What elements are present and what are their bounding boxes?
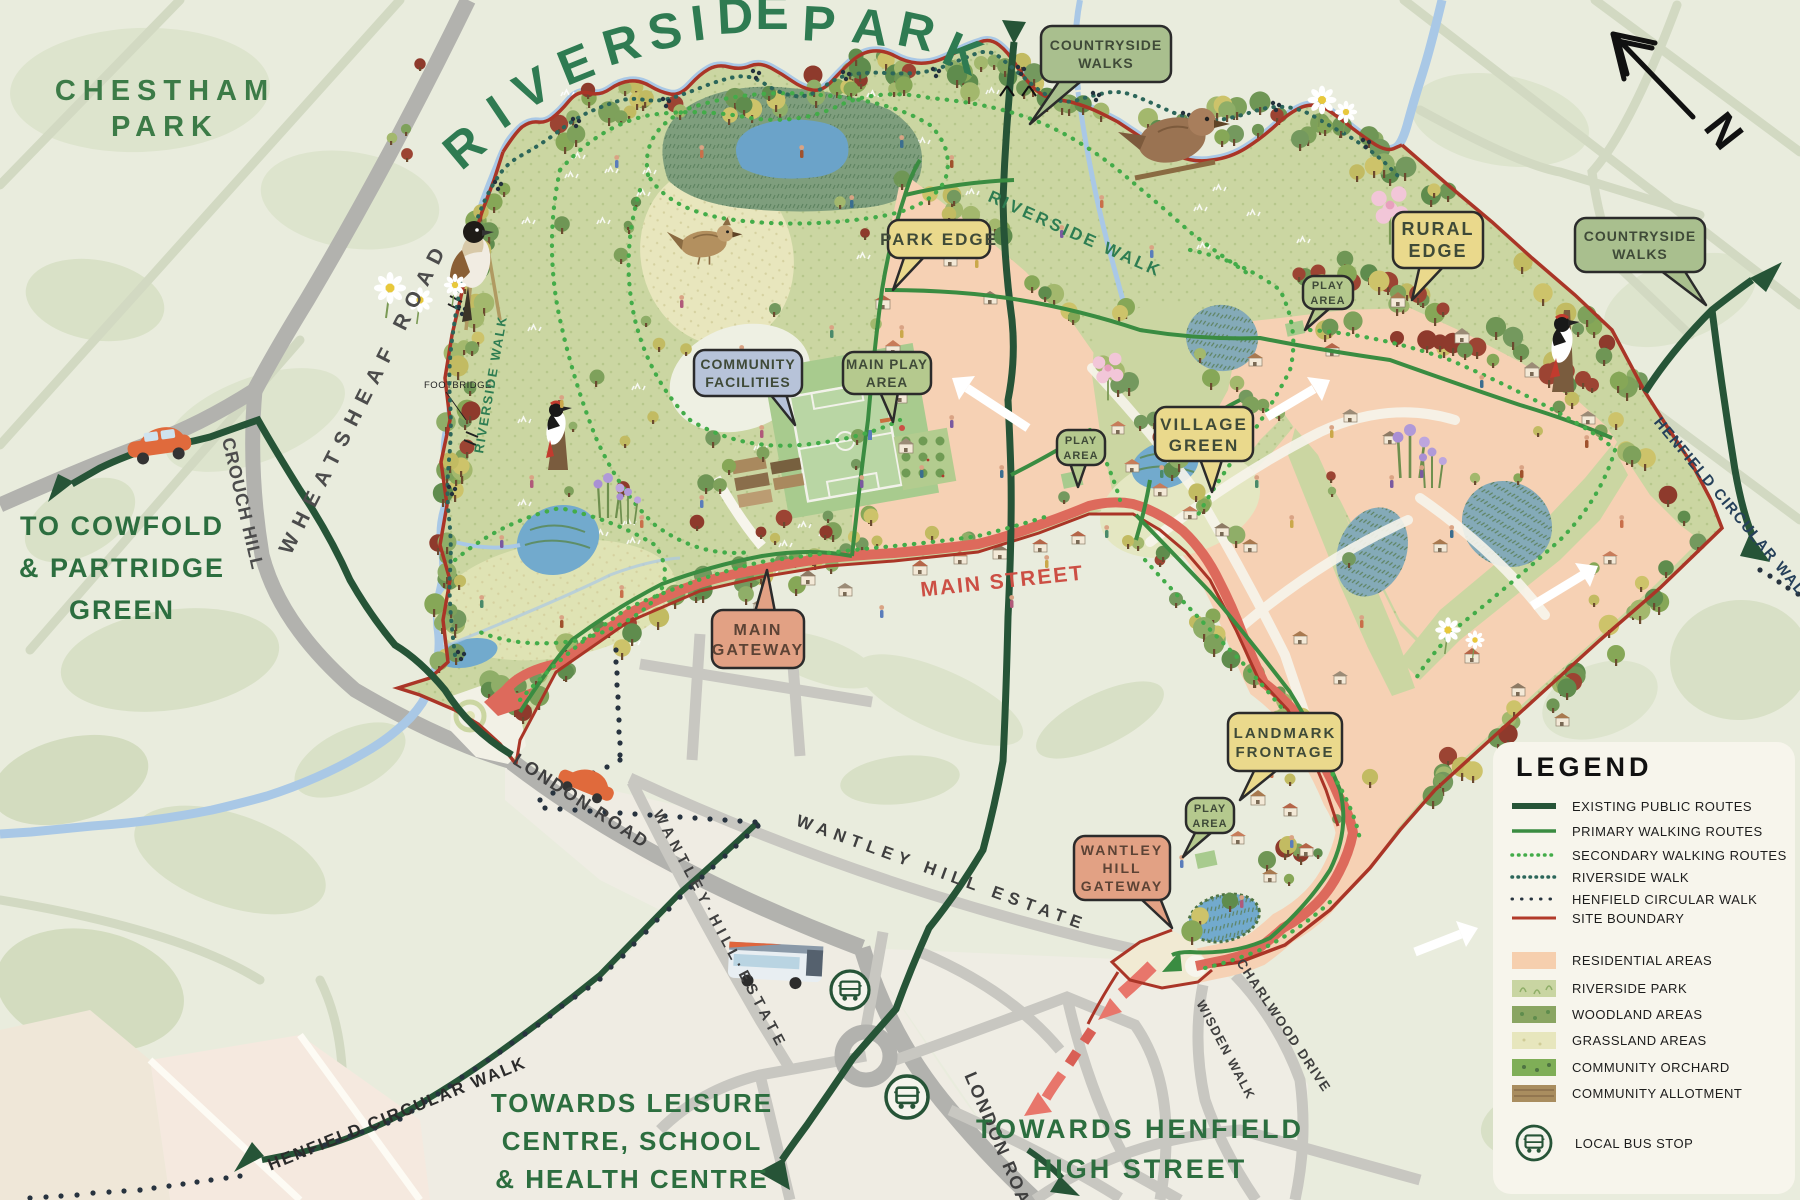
- svg-text:PARK EDGE: PARK EDGE: [880, 230, 998, 249]
- svg-text:COMMUNITY: COMMUNITY: [700, 356, 795, 372]
- svg-text:RIVERSIDE PARK: RIVERSIDE PARK: [1572, 981, 1687, 996]
- svg-text:TO COWFOLD: TO COWFOLD: [20, 511, 224, 541]
- svg-text:AREA: AREA: [1063, 450, 1098, 462]
- svg-text:PLAY: PLAY: [1312, 280, 1344, 292]
- svg-text:MAIN PLAY: MAIN PLAY: [846, 357, 928, 372]
- svg-text:FACILITIES: FACILITIES: [705, 374, 790, 390]
- svg-text:HIGH STREET: HIGH STREET: [1033, 1154, 1248, 1184]
- svg-text:COUNTRYSIDE: COUNTRYSIDE: [1584, 228, 1696, 244]
- svg-text:SITE BOUNDARY: SITE BOUNDARY: [1572, 911, 1684, 926]
- svg-text:MAIN: MAIN: [734, 622, 783, 639]
- svg-text:A: A: [849, 0, 892, 57]
- svg-text:GRASSLAND AREAS: GRASSLAND AREAS: [1572, 1033, 1707, 1048]
- svg-text:SECONDARY WALKING ROUTES: SECONDARY WALKING ROUTES: [1572, 848, 1787, 863]
- svg-text:GATEWAY: GATEWAY: [712, 642, 804, 659]
- svg-text:LEGEND: LEGEND: [1516, 752, 1653, 782]
- svg-text:COMMUNITY ORCHARD: COMMUNITY ORCHARD: [1572, 1060, 1730, 1075]
- svg-text:TOWARDS HENFIELD: TOWARDS HENFIELD: [976, 1114, 1304, 1144]
- svg-text:PLAY: PLAY: [1065, 435, 1097, 447]
- svg-text:TOWARDS LEISURE: TOWARDS LEISURE: [491, 1088, 773, 1118]
- svg-text:RIVERSIDE WALK: RIVERSIDE WALK: [1572, 870, 1689, 885]
- svg-text:P: P: [801, 0, 837, 53]
- svg-text:GREEN: GREEN: [1169, 436, 1239, 455]
- svg-text:PARK: PARK: [111, 111, 219, 143]
- svg-text:GATEWAY: GATEWAY: [1081, 878, 1163, 894]
- svg-text:RURAL: RURAL: [1402, 219, 1475, 239]
- svg-text:VILLAGE: VILLAGE: [1160, 415, 1248, 434]
- svg-text:EXISTING PUBLIC ROUTES: EXISTING PUBLIC ROUTES: [1572, 799, 1752, 814]
- svg-text:& HEALTH CENTRE: & HEALTH CENTRE: [495, 1164, 769, 1194]
- svg-text:COUNTRYSIDE: COUNTRYSIDE: [1050, 37, 1162, 53]
- svg-text:LANDMARK: LANDMARK: [1234, 725, 1337, 742]
- svg-text:& PARTRIDGE: & PARTRIDGE: [19, 553, 225, 583]
- svg-text:FRONTAGE: FRONTAGE: [1235, 744, 1334, 761]
- svg-text:D: D: [716, 0, 755, 45]
- svg-text:AREA: AREA: [1192, 818, 1227, 830]
- svg-text:CHESTHAM: CHESTHAM: [55, 75, 275, 107]
- svg-text:AREA: AREA: [1310, 295, 1345, 307]
- svg-text:AREA: AREA: [866, 375, 908, 390]
- svg-text:HILL: HILL: [1102, 860, 1141, 876]
- svg-text:RESIDENTIAL AREAS: RESIDENTIAL AREAS: [1572, 953, 1712, 968]
- svg-text:GREEN: GREEN: [69, 595, 175, 625]
- svg-text:COMMUNITY ALLOTMENT: COMMUNITY ALLOTMENT: [1572, 1086, 1742, 1101]
- svg-text:WOODLAND AREAS: WOODLAND AREAS: [1572, 1007, 1703, 1022]
- svg-text:E: E: [755, 0, 788, 40]
- svg-text:LOCAL BUS STOP: LOCAL BUS STOP: [1575, 1136, 1693, 1151]
- svg-text:HENFIELD CIRCULAR WALK: HENFIELD CIRCULAR WALK: [1572, 892, 1757, 907]
- svg-text:WALKS: WALKS: [1612, 246, 1668, 262]
- svg-text:WALKS: WALKS: [1078, 55, 1134, 71]
- svg-text:PLAY: PLAY: [1194, 803, 1226, 815]
- svg-text:PRIMARY WALKING ROUTES: PRIMARY WALKING ROUTES: [1572, 824, 1763, 839]
- svg-text:WANTLEY: WANTLEY: [1081, 842, 1163, 858]
- svg-text:EDGE: EDGE: [1408, 241, 1467, 261]
- svg-text:CENTRE, SCHOOL: CENTRE, SCHOOL: [502, 1126, 763, 1156]
